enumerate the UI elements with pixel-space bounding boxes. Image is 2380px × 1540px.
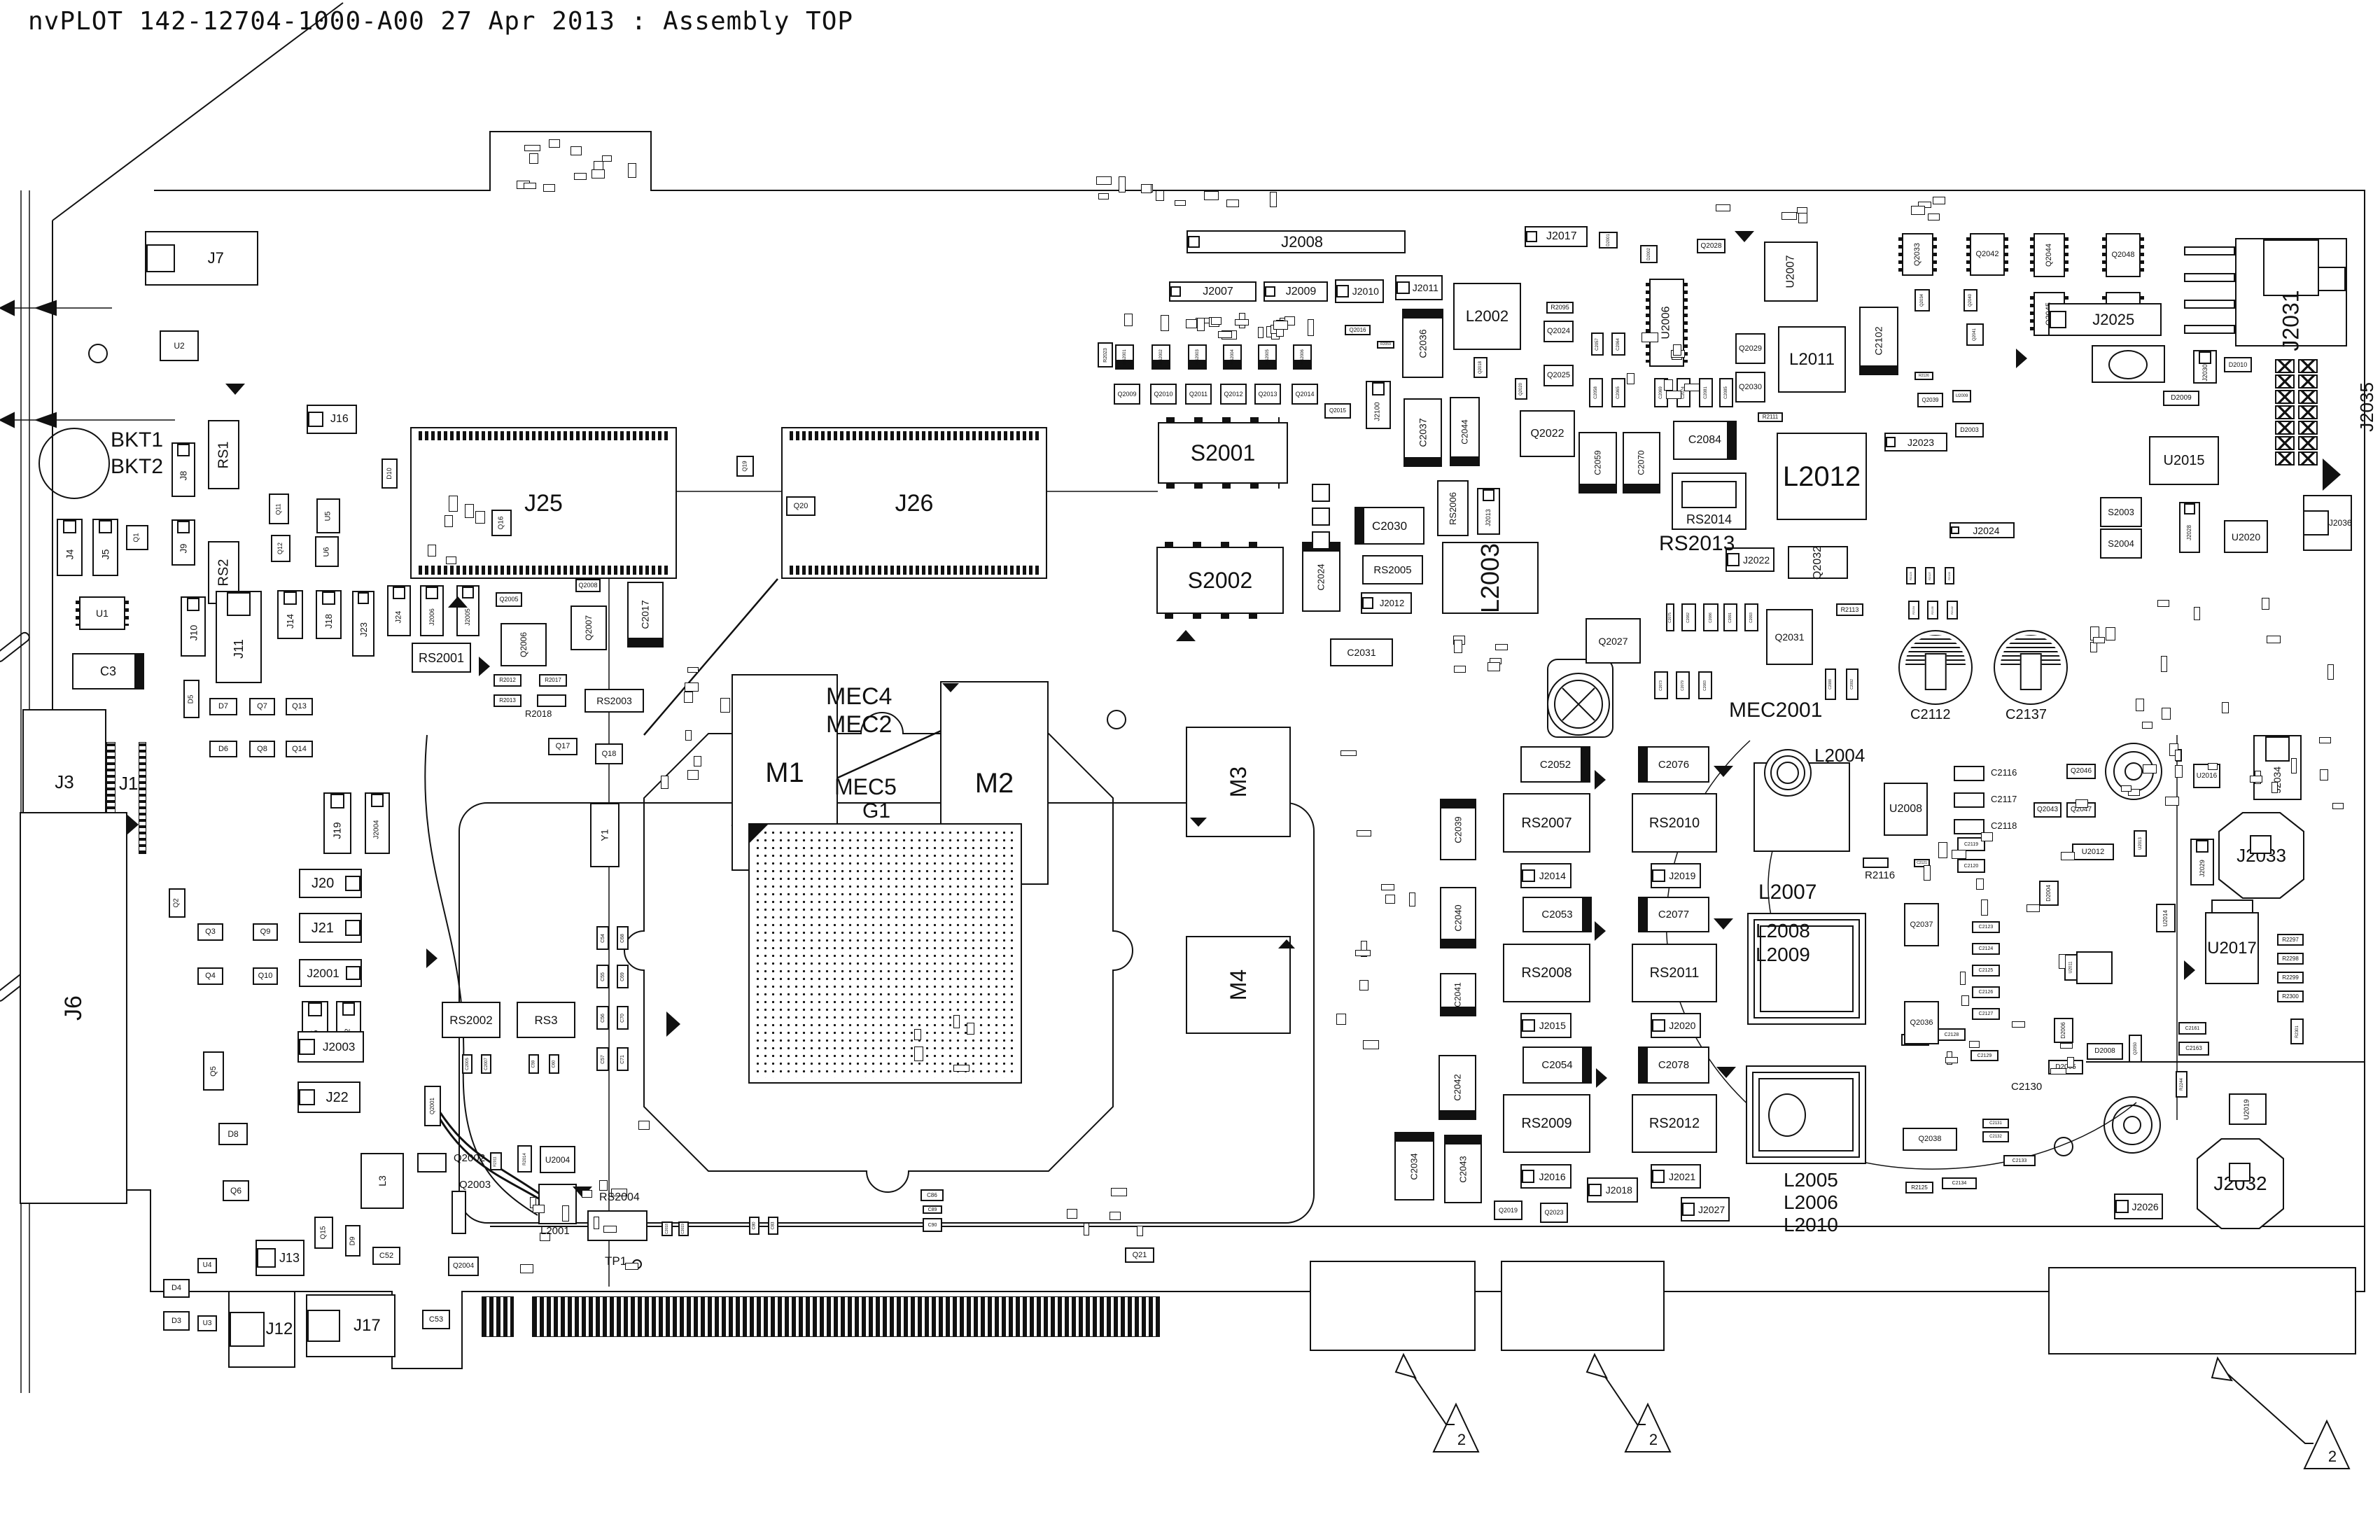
component-label: J2011 — [1413, 283, 1438, 293]
component-label: RS2005 — [1373, 565, 1411, 575]
component-label: J9 — [178, 544, 188, 554]
component-ds2003: DS2003 — [1188, 344, 1207, 370]
component-u4: U4 — [197, 1258, 217, 1273]
annotation-mec4: MEC4 — [826, 683, 892, 710]
component-c2075: C2075 — [1666, 603, 1674, 631]
direction-marker-icon — [1596, 1068, 1607, 1088]
component-label: J2031 — [2280, 290, 2302, 351]
component-b — [2318, 267, 2346, 291]
component-c2018: C2018 — [661, 1221, 673, 1236]
component-rs3: RS3 — [517, 1002, 575, 1038]
connector-pin1 — [1522, 1170, 1534, 1182]
component-r2111: R2111 — [1758, 412, 1783, 422]
component-label: U5 — [325, 511, 332, 521]
component-u2020: U2020 — [2224, 520, 2268, 553]
component-c2078: C2078 — [1638, 1046, 1709, 1084]
component-label: C80 — [752, 1221, 757, 1229]
pcb-assembly-drawing: nvPLOT 142-12704-1000-A00 27 Apr 2013 : … — [0, 0, 2380, 1540]
component-c2017: C2017 — [627, 582, 664, 647]
component-q2038: Q2038 — [1903, 1128, 1957, 1151]
component-label: S2003 — [2108, 507, 2134, 517]
component-label: J14 — [286, 614, 295, 629]
component-label: J2001 — [307, 967, 339, 979]
component-c2131: C2131 — [1982, 1119, 2009, 1128]
note-callout-triangle: 2 — [2310, 1421, 2355, 1470]
component-label: Q2009 — [1117, 391, 1136, 398]
component-b — [2076, 951, 2113, 984]
component-l2003: L2003 — [1442, 542, 1539, 614]
component-b — [2048, 1267, 2356, 1354]
small-passive-part — [953, 1015, 960, 1028]
component-c2085: C2085 — [1719, 378, 1733, 407]
connector-pin1 — [299, 1039, 315, 1055]
component-label: Q13 — [292, 703, 307, 710]
small-passive-part — [1454, 666, 1466, 673]
component-cap — [1994, 630, 2068, 705]
component-q2044: Q2044 — [2033, 233, 2065, 277]
component-label: C2163 — [2185, 1046, 2202, 1051]
component-label: R2059 — [1380, 343, 1391, 346]
small-passive-part — [533, 1205, 545, 1214]
component-label: Q2024 — [1547, 328, 1570, 335]
component-q1: Q1 — [126, 525, 148, 550]
component-s2001: S2001 — [1158, 422, 1288, 484]
component-j13: J13 — [255, 1240, 304, 1276]
component-c57: C57 — [596, 1047, 609, 1071]
small-passive-part — [549, 139, 560, 148]
component-label: R2023 — [1103, 348, 1108, 363]
connector-pin1 — [330, 794, 345, 808]
direction-marker-icon — [127, 815, 139, 834]
small-passive-part — [2059, 954, 2066, 969]
component-label: C2018 — [666, 1224, 669, 1234]
component-j11: J11 — [216, 591, 262, 683]
component-j2017: J2017 — [1525, 226, 1588, 247]
small-passive-part — [599, 1180, 607, 1191]
component-c2019: C2019 — [678, 1221, 689, 1236]
component-label: DS2006 — [1301, 349, 1305, 365]
component-label: D2010 — [2229, 362, 2248, 368]
component-j2032: J2032 — [2197, 1138, 2284, 1229]
component-label: R2297 — [2282, 937, 2299, 943]
component-label: Q2007 — [584, 615, 593, 640]
component-j8: J8 — [171, 442, 195, 497]
component-label: C2123 — [1979, 925, 1994, 930]
annotation-l2005: L2005 — [1784, 1169, 1838, 1191]
component-label: RS2 — [217, 559, 231, 587]
component-q7: Q7 — [249, 698, 275, 715]
component-c2042: C2042 — [1438, 1055, 1476, 1120]
component-label: C2019 — [682, 1224, 685, 1234]
connector-pin1 — [1362, 597, 1373, 608]
component-label: D5 — [188, 694, 195, 703]
component-label: Q2039 — [1921, 398, 1938, 403]
component-q2014: Q2014 — [1291, 384, 1318, 405]
small-passive-part — [1218, 331, 1232, 338]
component-label: D2009 — [2171, 395, 2191, 402]
component-label: C2034 — [1410, 1153, 1419, 1179]
component-label: C2086 — [1709, 612, 1712, 623]
component-label: C2078 — [1658, 1060, 1689, 1070]
component-label: Q2027 — [1598, 636, 1627, 646]
component-c56: C56 — [596, 1006, 609, 1030]
component-label: C2125 — [1979, 968, 1994, 973]
component-label: Q7 — [257, 703, 267, 710]
component-rs1: RS1 — [208, 420, 239, 489]
small-passive-part — [1340, 750, 1357, 757]
component-j2001: J2001 — [299, 959, 362, 987]
small-passive-part — [1111, 1188, 1127, 1196]
component-label: J2010 — [1352, 286, 1379, 296]
component-label: M3 — [1227, 766, 1249, 797]
small-passive-part — [2262, 598, 2269, 610]
small-passive-part — [2327, 664, 2334, 680]
small-passive-part — [1981, 899, 1988, 916]
small-passive-part — [1641, 332, 1658, 342]
small-passive-part — [1156, 190, 1164, 202]
component-c2044: C2044 — [1450, 397, 1480, 466]
component-c2070: C2070 — [1623, 432, 1660, 493]
component-rs2003: RS2003 — [584, 689, 644, 713]
component-label: C2005 — [465, 1058, 470, 1070]
component-q2007: Q2007 — [570, 605, 607, 650]
component-j2016: J2016 — [1520, 1164, 1571, 1189]
connector-pin1 — [1265, 286, 1275, 297]
component-q17: Q17 — [548, 738, 577, 755]
small-passive-part — [2271, 782, 2277, 793]
component-label: C2024 — [1317, 563, 1326, 590]
component-label: Q2044 — [2045, 244, 2053, 267]
component-label: M2 — [975, 769, 1014, 797]
component-label: C2128 — [1945, 1032, 1959, 1037]
component-q2040: Q2040 — [1963, 289, 1977, 311]
component-j2015: J2015 — [1520, 1013, 1571, 1038]
component-label: J2025 — [2092, 312, 2134, 328]
component-label: R2013 — [499, 698, 516, 703]
small-passive-part — [570, 146, 582, 155]
component-j2031: J2031 — [2235, 238, 2347, 346]
component-label: Q3 — [205, 928, 216, 936]
component-j2020: J2020 — [1651, 1013, 1701, 1038]
component-label: R2125 — [1911, 1185, 1928, 1191]
component-label: C2102 — [1874, 326, 1884, 355]
connector-pin1 — [1588, 1184, 1602, 1197]
component-label: Q2012 — [1224, 391, 1242, 398]
component-c2024: C2024 — [1302, 542, 1340, 612]
small-passive-part — [638, 1121, 650, 1130]
small-passive-part — [524, 183, 536, 189]
small-passive-part — [1308, 319, 1314, 336]
connector-pin1 — [393, 587, 405, 599]
component-label: C2017 — [640, 600, 650, 629]
component-j14: J14 — [277, 590, 303, 639]
component-rs2008: RS2008 — [1503, 944, 1590, 1002]
component-label: U2017 — [2207, 940, 2257, 957]
small-passive-part — [2061, 852, 2075, 860]
component-l2002: L2002 — [1453, 283, 1521, 350]
direction-marker-icon — [1735, 231, 1754, 242]
component-u2009: U2009 — [1952, 390, 1971, 402]
component-b — [2184, 246, 2235, 255]
component-q2028: Q2028 — [1697, 239, 1725, 253]
component-d2009: D2009 — [2163, 391, 2199, 406]
small-passive-part — [684, 692, 694, 703]
annotation-rs2013: RS2013 — [1659, 532, 1735, 556]
small-passive-part — [1952, 850, 1966, 859]
component-label: J2022 — [1743, 555, 1770, 565]
component-c2065: C2065 — [1611, 378, 1625, 407]
component-d4: D4 — [163, 1279, 190, 1298]
component-q2030: Q2030 — [1735, 372, 1765, 402]
connector-pin1 — [322, 591, 335, 605]
component-q16: Q16 — [491, 510, 512, 536]
direction-marker-icon — [1176, 630, 1196, 641]
component-label: C60 — [552, 1060, 556, 1067]
annotation-mec2001: MEC2001 — [1729, 699, 1822, 722]
component-label: J2020 — [1669, 1021, 1695, 1030]
connector-pin — [2298, 390, 2318, 404]
component-c2127: C2127 — [1972, 1008, 2000, 1020]
component-label: U1 — [96, 608, 108, 618]
component-label: J6 — [62, 995, 85, 1021]
component-u2008: U2008 — [1884, 783, 1928, 836]
component-c2034: C2034 — [1394, 1132, 1434, 1200]
component-u6: U6 — [315, 536, 339, 567]
component-label: RS2003 — [596, 696, 632, 706]
component-c2126: C2126 — [1972, 986, 2000, 998]
component-label: U2016 — [2197, 773, 2217, 780]
component-label: J2017 — [1546, 231, 1577, 242]
component-r2133: R2133 — [1945, 567, 1954, 584]
connector-pin1 — [1886, 437, 1896, 447]
component-l2012: L2012 — [1777, 433, 1867, 520]
component-u2007: U2007 — [1764, 241, 1818, 302]
component-label: J5 — [100, 549, 110, 559]
component-comb — [139, 742, 146, 854]
component-q19: Q19 — [736, 456, 754, 477]
component-c2007: C2007 — [481, 1054, 491, 1074]
component-rs2010: RS2010 — [1632, 793, 1717, 853]
small-passive-part — [2320, 769, 2328, 780]
note-callout-triangle: 2 — [1439, 1404, 1484, 1453]
small-passive-part — [2267, 636, 2281, 644]
component-m4: M4 — [1186, 936, 1291, 1034]
note-number: 2 — [2328, 1448, 2337, 1470]
small-passive-part — [1454, 640, 1462, 654]
component-label: J17 — [353, 1317, 381, 1334]
component-b — [2211, 899, 2253, 913]
connector-pin — [2275, 359, 2295, 373]
component-ds2005: DS2005 — [1258, 344, 1277, 370]
connector-pin — [2275, 374, 2295, 388]
note-number: 2 — [1649, 1431, 1658, 1453]
small-passive-part — [603, 1226, 617, 1233]
small-passive-part — [2093, 637, 2105, 643]
component-j24: J24 — [387, 585, 411, 636]
component-cap — [1898, 630, 1973, 705]
component-c90: C90 — [923, 1218, 942, 1232]
component-c83: C83 — [768, 1217, 778, 1235]
component-ds2001: DS2001 — [1115, 344, 1134, 370]
component-label: C2082 — [1687, 612, 1690, 623]
component-ds2006: DS2006 — [1293, 344, 1312, 370]
component-label: Q2023 — [1544, 1210, 1563, 1216]
component-q21: Q21 — [1125, 1247, 1154, 1263]
small-passive-part — [1270, 192, 1277, 208]
annotation-mec2: MEC2 — [826, 711, 892, 738]
component-label: C2058 — [1594, 386, 1598, 399]
component-label: R2123 — [1910, 572, 1912, 580]
component-label: C2064 — [1616, 338, 1620, 351]
component-j2007: J2007 — [1169, 281, 1256, 302]
component-label: J2021 — [1669, 1172, 1695, 1182]
component-label: U2004 — [545, 1156, 570, 1164]
component-q2027: Q2027 — [1585, 618, 1641, 664]
annotation-r2116: R2116 — [1865, 869, 1895, 881]
component-label: J19 — [332, 822, 343, 839]
component-label: Q1 — [134, 533, 141, 542]
annotation-c2118: C2118 — [1991, 820, 2017, 831]
component-c2163: C2163 — [2178, 1042, 2209, 1056]
component-b — [1954, 766, 1984, 781]
component-label: Q2005 — [499, 596, 518, 603]
direction-marker-icon — [1278, 939, 1295, 948]
component-label: C2081 — [1704, 386, 1708, 399]
component-c2091: C2091 — [1723, 603, 1737, 631]
connector-pin1 — [2196, 840, 2208, 853]
component-label: Q8 — [257, 745, 267, 753]
component-label: Q2022 — [1530, 428, 1564, 440]
component-d2004: D2004 — [2039, 881, 2059, 906]
component-label: J10 — [188, 625, 198, 641]
component-label: U6 — [323, 547, 331, 556]
connector-pin — [2298, 421, 2318, 435]
connector-pin1 — [227, 592, 251, 616]
small-passive-part — [1235, 319, 1249, 325]
component-label: R2095 — [1550, 304, 1569, 311]
component-q2009: Q2009 — [1114, 384, 1140, 405]
component-d2008: D2008 — [2087, 1043, 2123, 1060]
component-label: C2091 — [1728, 612, 1732, 623]
component-r2014: R2014 — [517, 1145, 532, 1172]
small-passive-part — [1211, 317, 1221, 324]
component-q2016: Q2016 — [1345, 325, 1371, 335]
connector-pin1 — [1652, 1019, 1665, 1032]
component-label: J2030 — [2202, 365, 2208, 382]
component-q2020: Q2020 — [1515, 378, 1527, 400]
annotation-c2112: C2112 — [1910, 707, 1950, 723]
direction-marker-icon — [2184, 960, 2195, 980]
component-j2006: J2006 — [420, 585, 444, 636]
component-u5: U5 — [316, 498, 340, 533]
component-label: R2127 — [1928, 572, 1931, 580]
small-passive-part — [2026, 904, 2040, 912]
component-d10: D10 — [381, 458, 398, 489]
component-label: M4 — [1227, 969, 1249, 1000]
small-passive-part — [2194, 607, 2200, 620]
connector-pin1 — [1483, 489, 1494, 501]
component-d2003: D2003 — [1955, 423, 1984, 437]
component-label: C2073 — [1659, 680, 1662, 691]
small-passive-part — [685, 682, 699, 692]
component-label: C68 — [620, 934, 625, 943]
component-label: J2003 — [323, 1041, 355, 1053]
component-label: R2017 — [545, 678, 561, 683]
annotation-c2117: C2117 — [1991, 794, 2017, 804]
component-label: C56 — [601, 1014, 605, 1023]
component-ccoil — [1764, 749, 1812, 797]
connector-pin — [2275, 436, 2295, 450]
connector-pin1 — [1188, 236, 1200, 248]
small-passive-part — [591, 169, 605, 179]
small-passive-part — [1924, 865, 1931, 881]
direction-marker-icon — [1716, 1067, 1736, 1078]
connector-pin1 — [177, 521, 190, 533]
connector-pin1 — [1526, 231, 1537, 242]
component-j2009: J2009 — [1263, 281, 1328, 302]
component-r2298: R2298 — [2277, 953, 2304, 965]
small-passive-part — [2075, 799, 2088, 808]
connector-pin1 — [1396, 281, 1410, 295]
component-label: S2004 — [2108, 539, 2134, 548]
component-r2023: R2023 — [1098, 342, 1113, 367]
component-label: J4 — [64, 549, 74, 559]
direction-marker-icon — [479, 657, 490, 676]
component-bga — [748, 823, 1022, 1084]
component-label: J2006 — [429, 608, 435, 626]
small-passive-part — [2060, 1043, 2073, 1049]
small-passive-part — [520, 1264, 534, 1273]
component-label: J2016 — [1539, 1172, 1566, 1182]
component-l2011: L2011 — [1778, 326, 1846, 393]
component-j2100: J2100 — [1366, 381, 1391, 429]
small-passive-part — [1969, 1041, 1980, 1048]
component-label: C2065 — [1616, 386, 1620, 399]
component-j2033: J2033 — [2218, 812, 2304, 899]
component-label: Q19 — [743, 461, 748, 471]
component-b — [1312, 531, 1330, 549]
component-q2013: Q2013 — [1254, 384, 1281, 405]
component-q2008: Q2008 — [575, 579, 601, 592]
component-c2058: C2058 — [1589, 378, 1603, 407]
component-c2092: C2092 — [1846, 668, 1858, 700]
component-label: D2001 — [1606, 234, 1611, 246]
component-label: D9 — [349, 1236, 356, 1245]
component-rs2011: RS2011 — [1632, 944, 1717, 1002]
component-q2048: Q2048 — [2106, 233, 2141, 277]
connector-pin1 — [99, 520, 112, 533]
component-q14: Q14 — [286, 741, 313, 757]
component-label: U2020 — [2232, 532, 2260, 542]
component-label: C2044 — [1461, 419, 1469, 444]
component-c2081: C2081 — [1699, 378, 1713, 407]
component-r2142: R2142 — [1947, 601, 1958, 619]
component-b — [1954, 819, 1984, 834]
component-label: RS1 — [217, 441, 231, 468]
component-j6: J6 — [20, 812, 127, 1204]
component-j2025: J2025 — [2048, 303, 2162, 336]
connector-pin1 — [307, 1310, 340, 1343]
component-d2010: D2010 — [2224, 357, 2252, 372]
component-label: C52 — [379, 1252, 393, 1260]
component-label: Q2031 — [1774, 632, 1804, 642]
component-j16: J16 — [307, 405, 357, 434]
component-b — [1310, 1261, 1476, 1351]
component-q2036: Q2036 — [1904, 1001, 1939, 1044]
small-passive-part — [2162, 708, 2171, 720]
connector-pin1 — [1682, 1203, 1695, 1215]
annotation-r2018: R2018 — [525, 708, 552, 719]
